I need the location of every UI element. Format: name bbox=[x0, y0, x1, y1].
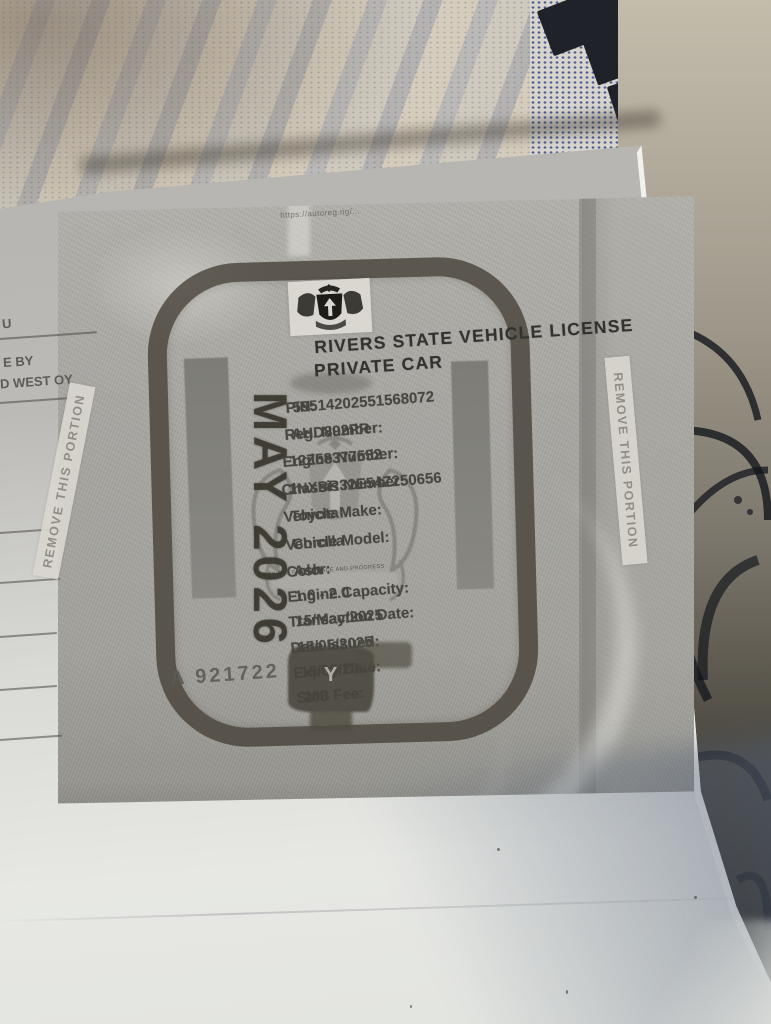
ink-stamp-mark: Y bbox=[324, 664, 340, 686]
stub-fragment: U bbox=[1, 316, 11, 332]
ink-stamp-smudge bbox=[358, 642, 412, 668]
stub-fragment: E BY bbox=[3, 353, 34, 370]
right-gray-pillar bbox=[451, 361, 494, 590]
dust-speck bbox=[566, 990, 568, 994]
license-printed-area: https://autoreg.ng/... RIVERS STATE VEHI… bbox=[58, 196, 694, 806]
bright-fold-corner bbox=[640, 920, 771, 1024]
photo-of-vehicle-license: https://autoreg.ng/... RIVERS STATE VEHI… bbox=[0, 0, 771, 1024]
field-value: Ash bbox=[293, 561, 323, 580]
dust-speck bbox=[410, 1005, 412, 1008]
nigeria-coat-of-arms-icon bbox=[288, 278, 373, 336]
dust-speck bbox=[694, 896, 697, 899]
coat-of-arms-box bbox=[288, 278, 373, 336]
ink-stamp-smudge bbox=[310, 710, 352, 730]
dust-speck bbox=[497, 848, 500, 851]
